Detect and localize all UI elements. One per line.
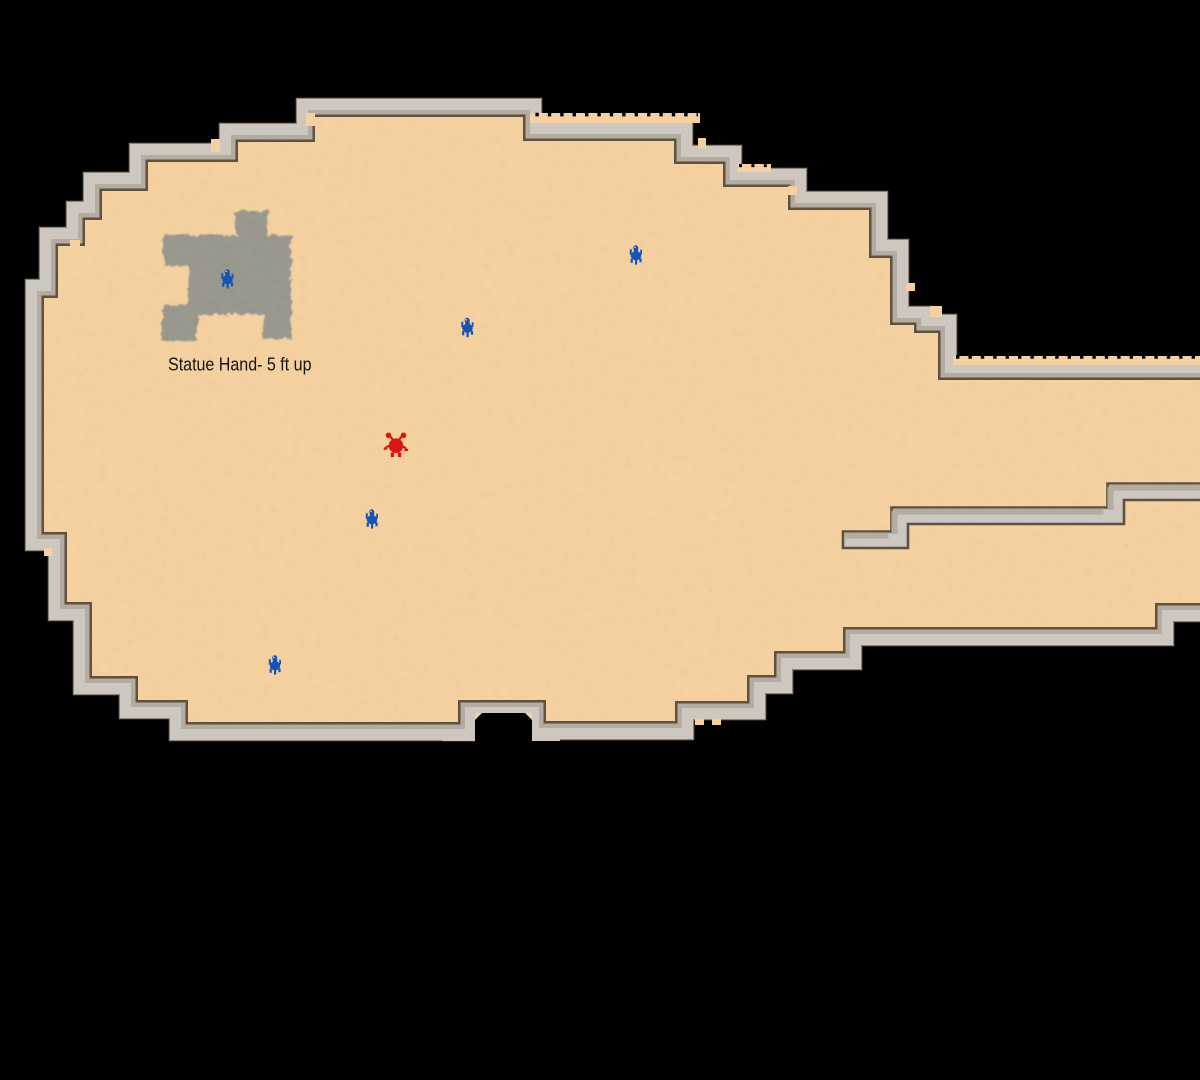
- svg-text:Statue Hand- 5 ft up: Statue Hand- 5 ft up: [168, 355, 312, 375]
